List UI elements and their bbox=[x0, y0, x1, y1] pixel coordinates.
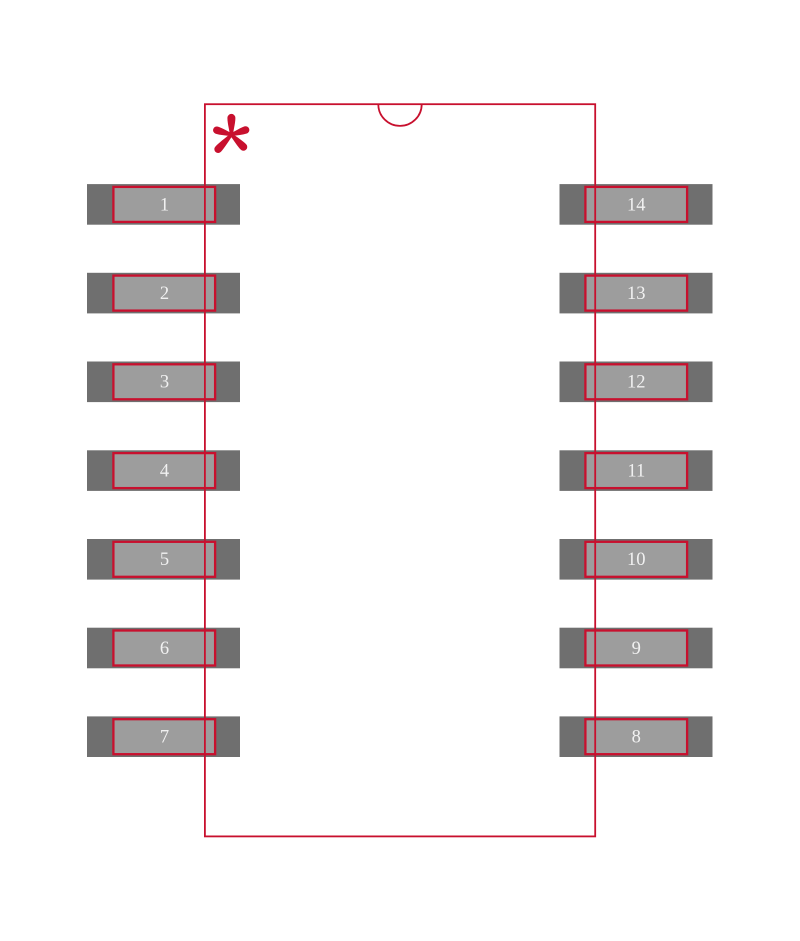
svg-text:4: 4 bbox=[160, 462, 169, 482]
svg-text:3: 3 bbox=[160, 373, 169, 393]
svg-text:2: 2 bbox=[160, 284, 169, 304]
svg-text:6: 6 bbox=[160, 639, 169, 659]
svg-text:5: 5 bbox=[160, 550, 169, 570]
svg-text:14: 14 bbox=[627, 195, 646, 215]
svg-text:10: 10 bbox=[627, 550, 646, 570]
svg-text:7: 7 bbox=[160, 728, 169, 748]
svg-text:12: 12 bbox=[627, 373, 646, 393]
svg-text:9: 9 bbox=[632, 639, 641, 659]
svg-text:11: 11 bbox=[627, 462, 645, 482]
svg-text:8: 8 bbox=[632, 728, 641, 748]
svg-text:1: 1 bbox=[160, 195, 169, 215]
svg-text:13: 13 bbox=[627, 284, 646, 304]
